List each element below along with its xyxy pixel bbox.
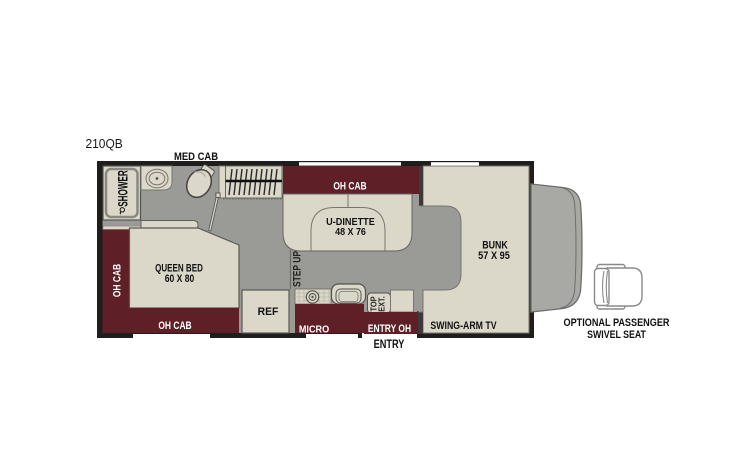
svg-text:60 X 80: 60 X 80 [165, 273, 195, 285]
svg-text:SWING-ARM TV: SWING-ARM TV [430, 320, 497, 332]
svg-text:OPTIONAL PASSENGER: OPTIONAL PASSENGER [563, 317, 670, 329]
svg-text:REF: REF [258, 306, 279, 318]
svg-text:OH CAB: OH CAB [158, 320, 191, 332]
svg-text:SHOWER: SHOWER [117, 170, 132, 206]
svg-text:57 X 95: 57 X 95 [478, 250, 510, 262]
svg-text:OH CAB: OH CAB [333, 181, 366, 193]
svg-text:EXT.: EXT. [377, 296, 387, 312]
svg-text:48 X 76: 48 X 76 [335, 226, 366, 238]
svg-text:STEP UP: STEP UP [292, 251, 304, 287]
svg-text:ENTRY: ENTRY [374, 339, 405, 351]
svg-text:SWIVEL SEAT: SWIVEL SEAT [587, 329, 646, 341]
svg-text:MICRO: MICRO [299, 324, 330, 336]
svg-text:ENTRY OH: ENTRY OH [368, 323, 411, 335]
svg-text:210QB: 210QB [86, 136, 123, 151]
svg-text:OH CAB: OH CAB [112, 264, 124, 297]
